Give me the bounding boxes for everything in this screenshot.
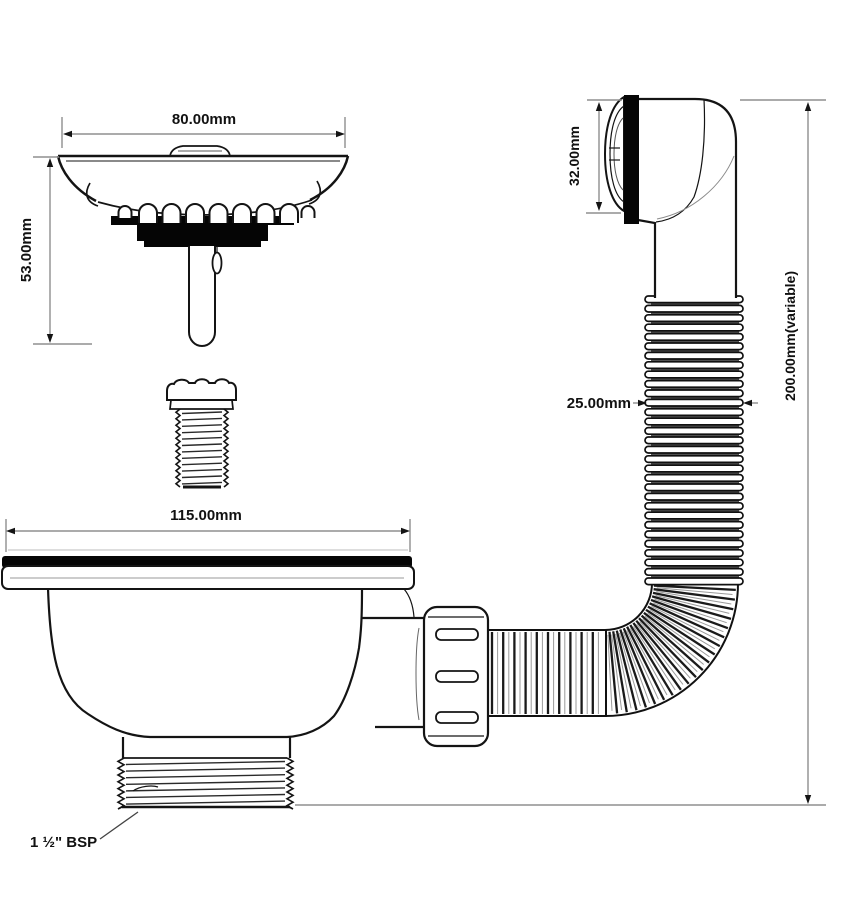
backnut-rib	[436, 712, 478, 723]
dim-53mm-label: 53.00mm	[18, 218, 35, 282]
dim-115mm-label: 115.00mm	[170, 507, 242, 524]
dim-200mm-label: 200.00mm(variable)	[782, 271, 798, 401]
strainer-stem	[189, 246, 222, 346]
backnut-rib	[436, 671, 478, 682]
strainer-loops	[119, 204, 315, 223]
backnut	[424, 607, 488, 746]
fixing-screw	[167, 379, 236, 487]
strainer-basket	[58, 146, 348, 346]
overflow-spout	[361, 589, 426, 727]
hose-horizontal-section	[487, 630, 606, 716]
waste-kit-drawing: 80.00mm 53.00mm 115.00mm 32.00mm 25.00mm	[0, 0, 849, 900]
stem-pin	[213, 253, 222, 274]
outlet-thread	[118, 737, 293, 809]
sink-flange	[2, 550, 414, 589]
hose-rings	[645, 296, 743, 585]
sink-flange-body	[2, 550, 426, 809]
overflow-face-seal	[624, 95, 639, 224]
dim-80mm-label: 80.00mm	[172, 111, 236, 128]
overflow-grille	[605, 97, 624, 211]
flexible-overflow-hose	[487, 296, 743, 716]
diagram-canvas: 80.00mm 53.00mm 115.00mm 32.00mm 25.00mm	[0, 0, 849, 900]
bsp-thread-label: 1 ½" BSP	[30, 834, 97, 851]
dim-25mm-label: 25.00mm	[567, 395, 631, 412]
dim-32mm-label: 32.00mm	[566, 126, 582, 186]
screw-threads	[176, 409, 228, 487]
overflow-elbow	[605, 95, 736, 299]
backnut-rib	[436, 629, 478, 640]
